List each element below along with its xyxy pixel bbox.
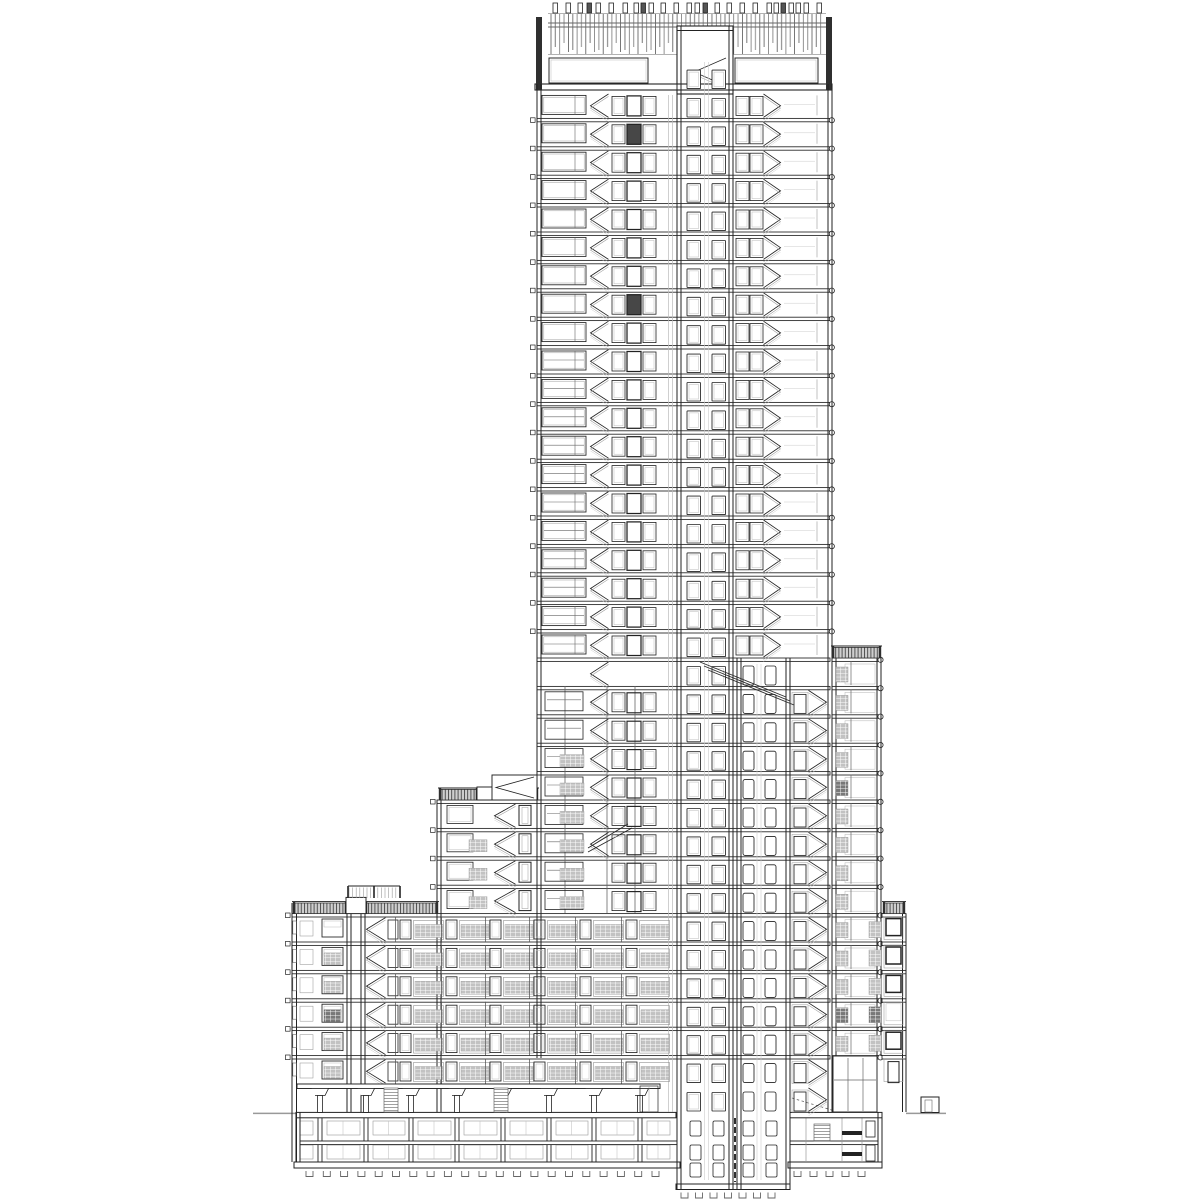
section-svg [0,0,1200,1200]
architectural-section-page [0,0,1200,1200]
